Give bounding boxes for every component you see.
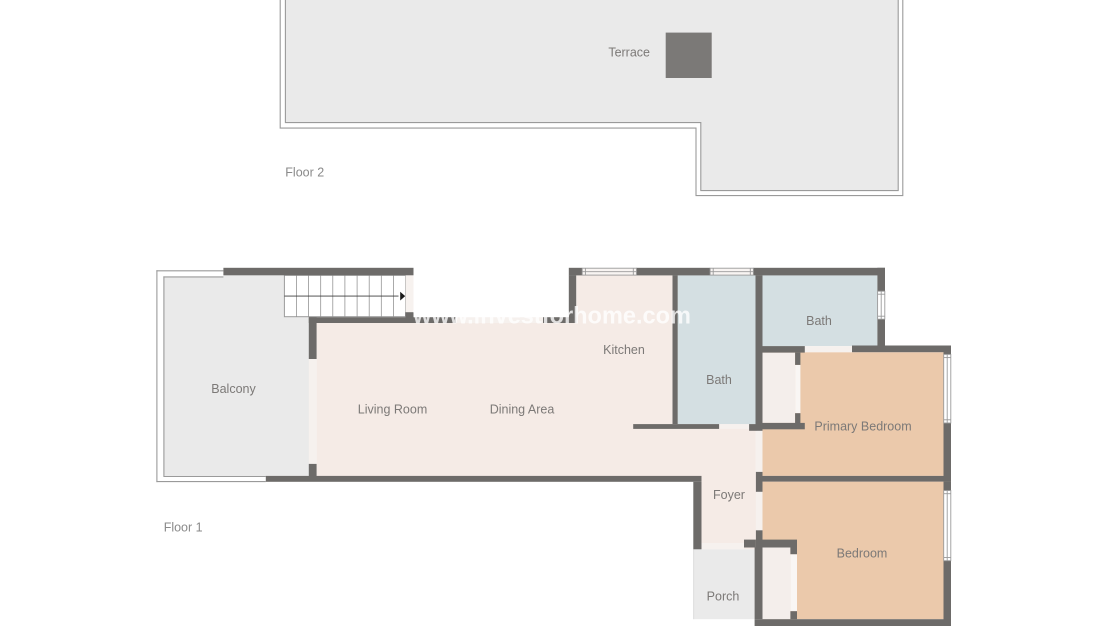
svg-text:Kitchen: Kitchen <box>603 343 645 357</box>
svg-text:Primary Bedroom: Primary Bedroom <box>814 420 911 434</box>
svg-text:Floor 2: Floor 2 <box>285 165 324 179</box>
svg-text:Bath: Bath <box>806 314 832 328</box>
svg-text:Foyer: Foyer <box>713 488 745 502</box>
svg-text:Dining Area: Dining Area <box>490 403 555 417</box>
svg-text:Bedroom: Bedroom <box>837 547 888 561</box>
svg-text:Balcony: Balcony <box>211 382 256 396</box>
svg-text:www.investforhome.com: www.investforhome.com <box>412 303 691 330</box>
svg-text:Floor 1: Floor 1 <box>164 521 203 535</box>
svg-text:Porch: Porch <box>707 589 740 603</box>
svg-text:Living Room: Living Room <box>358 403 427 417</box>
svg-text:Bath: Bath <box>706 373 732 387</box>
svg-text:Terrace: Terrace <box>608 46 650 60</box>
